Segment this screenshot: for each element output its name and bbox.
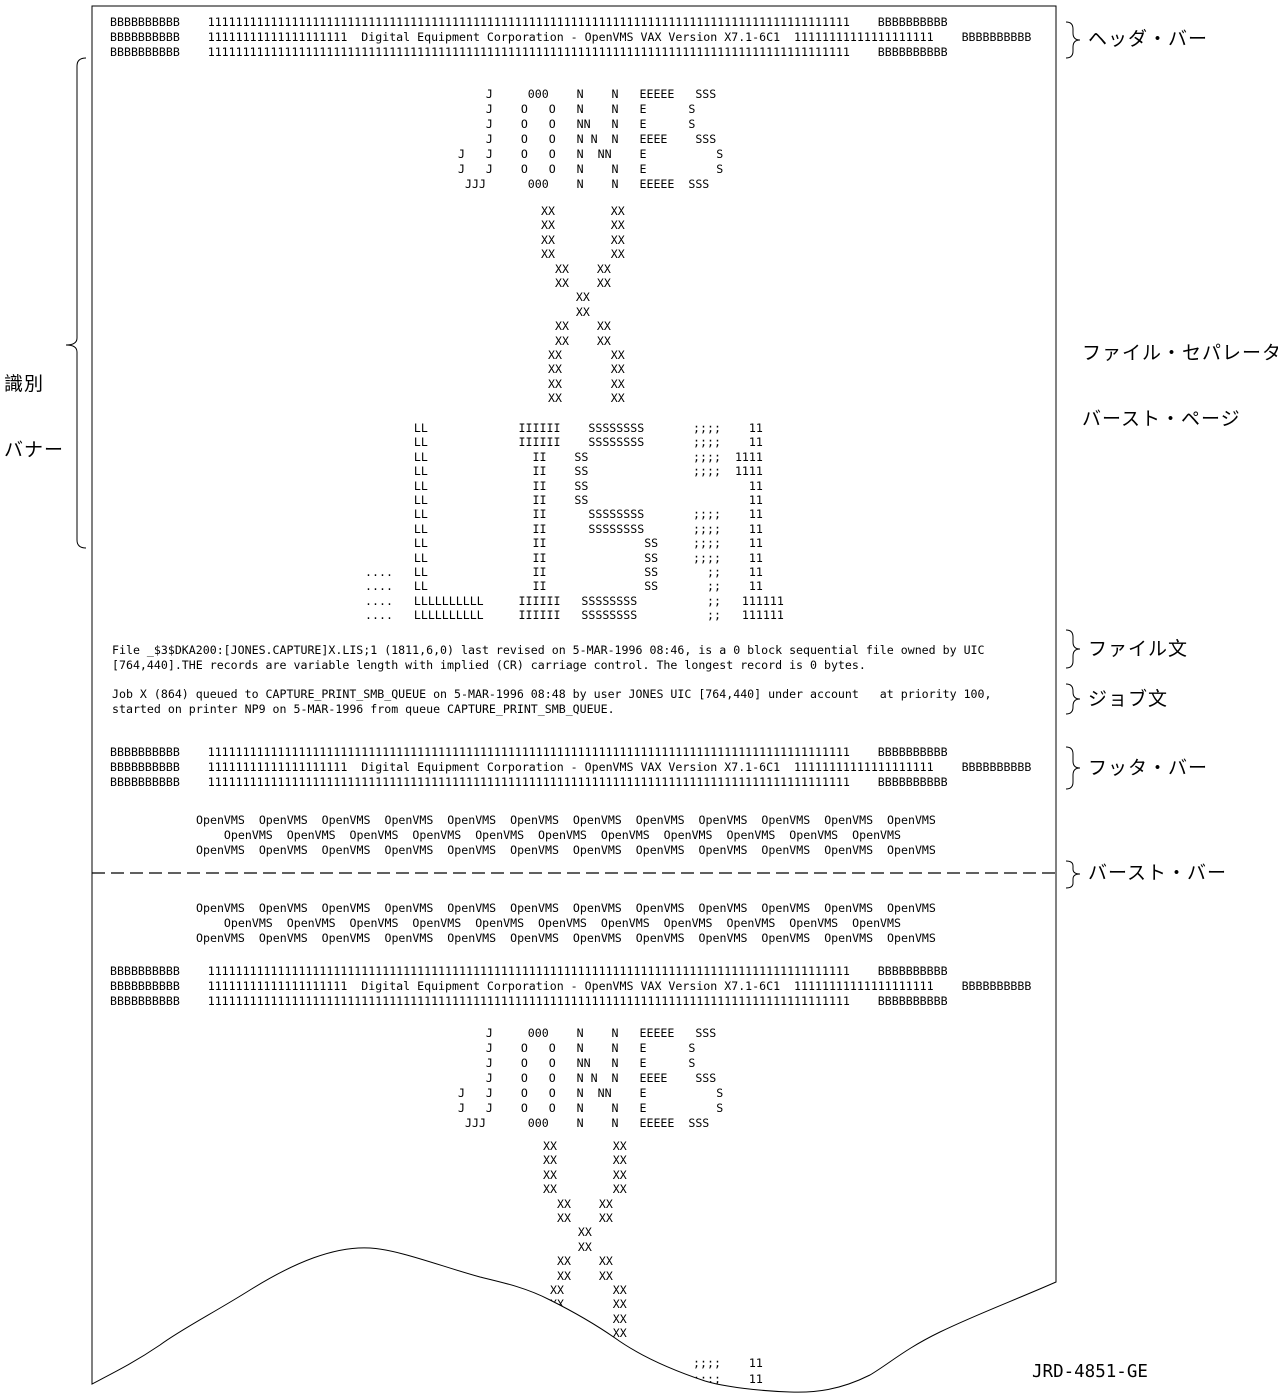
label-file-text: ファイル文	[1088, 638, 1188, 660]
second-jones-banner-art: J 000 N N EEEEE SSS J O O N N E S J O O …	[458, 1026, 723, 1131]
label-burst-bar: バースト・バー	[1088, 862, 1227, 884]
x-banner-art: XX XX XX XX XX XX XX XX XX XX XX XX XX X…	[541, 204, 625, 406]
label-footer-bar: フッタ・バー	[1088, 757, 1208, 779]
openvms-trailer-top: OpenVMS OpenVMS OpenVMS OpenVMS OpenVMS …	[196, 813, 936, 858]
label-file-separator-line2: バースト・ページ	[1082, 408, 1278, 430]
job-text: Job X (864) queued to CAPTURE_PRINT_SMB_…	[112, 687, 991, 717]
banner-page: BBBBBBBBBB 11111111111111111111111111111…	[0, 0, 1278, 1396]
label-identification-banner: 識別 バナー	[4, 329, 64, 505]
file-text-brace	[1066, 630, 1080, 668]
label-file-separator: ファイル・セパレータ バースト・ページ	[1082, 298, 1278, 474]
label-header-bar: ヘッダ・バー	[1088, 28, 1208, 50]
jones-banner-art: J 000 N N EEEEE SSS J O O N N E S J O O …	[458, 87, 723, 192]
header-bar-brace	[1066, 22, 1080, 58]
burst-bar-brace	[1066, 861, 1080, 888]
footer-bar-brace	[1066, 747, 1080, 789]
job-text-brace	[1066, 684, 1080, 714]
identification-banner-brace	[66, 58, 86, 548]
label-file-separator-line1: ファイル・セパレータ	[1082, 342, 1278, 364]
second-header-bar: BBBBBBBBBB 11111111111111111111111111111…	[110, 964, 1031, 1009]
label-identification-banner-line2: バナー	[4, 439, 64, 461]
file-text: File _$3$DKA200:[JONES.CAPTURE]X.LIS;1 (…	[112, 643, 985, 673]
second-x-banner-art: XX XX XX XX XX XX XX XX XX XX XX XX XX X…	[543, 1139, 627, 1341]
figure-canvas: BBBBBBBBBB 11111111111111111111111111111…	[0, 0, 1278, 1396]
lis-banner-art: LL IIIIII SSSSSSSS ;;;; 11 LL IIIIII SSS…	[365, 421, 784, 623]
second-lis-banner-art-partial: LL IIIIII SSSSSSSS ;;;; 11 LL IIIIII SSS…	[365, 1355, 763, 1387]
footer-bar: BBBBBBBBBB 11111111111111111111111111111…	[110, 745, 1031, 790]
openvms-trailer-bottom: OpenVMS OpenVMS OpenVMS OpenVMS OpenVMS …	[196, 901, 936, 946]
figure-id: JRD-4851-GE	[1032, 1362, 1148, 1382]
header-bar: BBBBBBBBBB 11111111111111111111111111111…	[110, 15, 1031, 60]
label-identification-banner-line1: 識別	[4, 373, 64, 395]
label-job-text: ジョブ文	[1088, 688, 1168, 710]
